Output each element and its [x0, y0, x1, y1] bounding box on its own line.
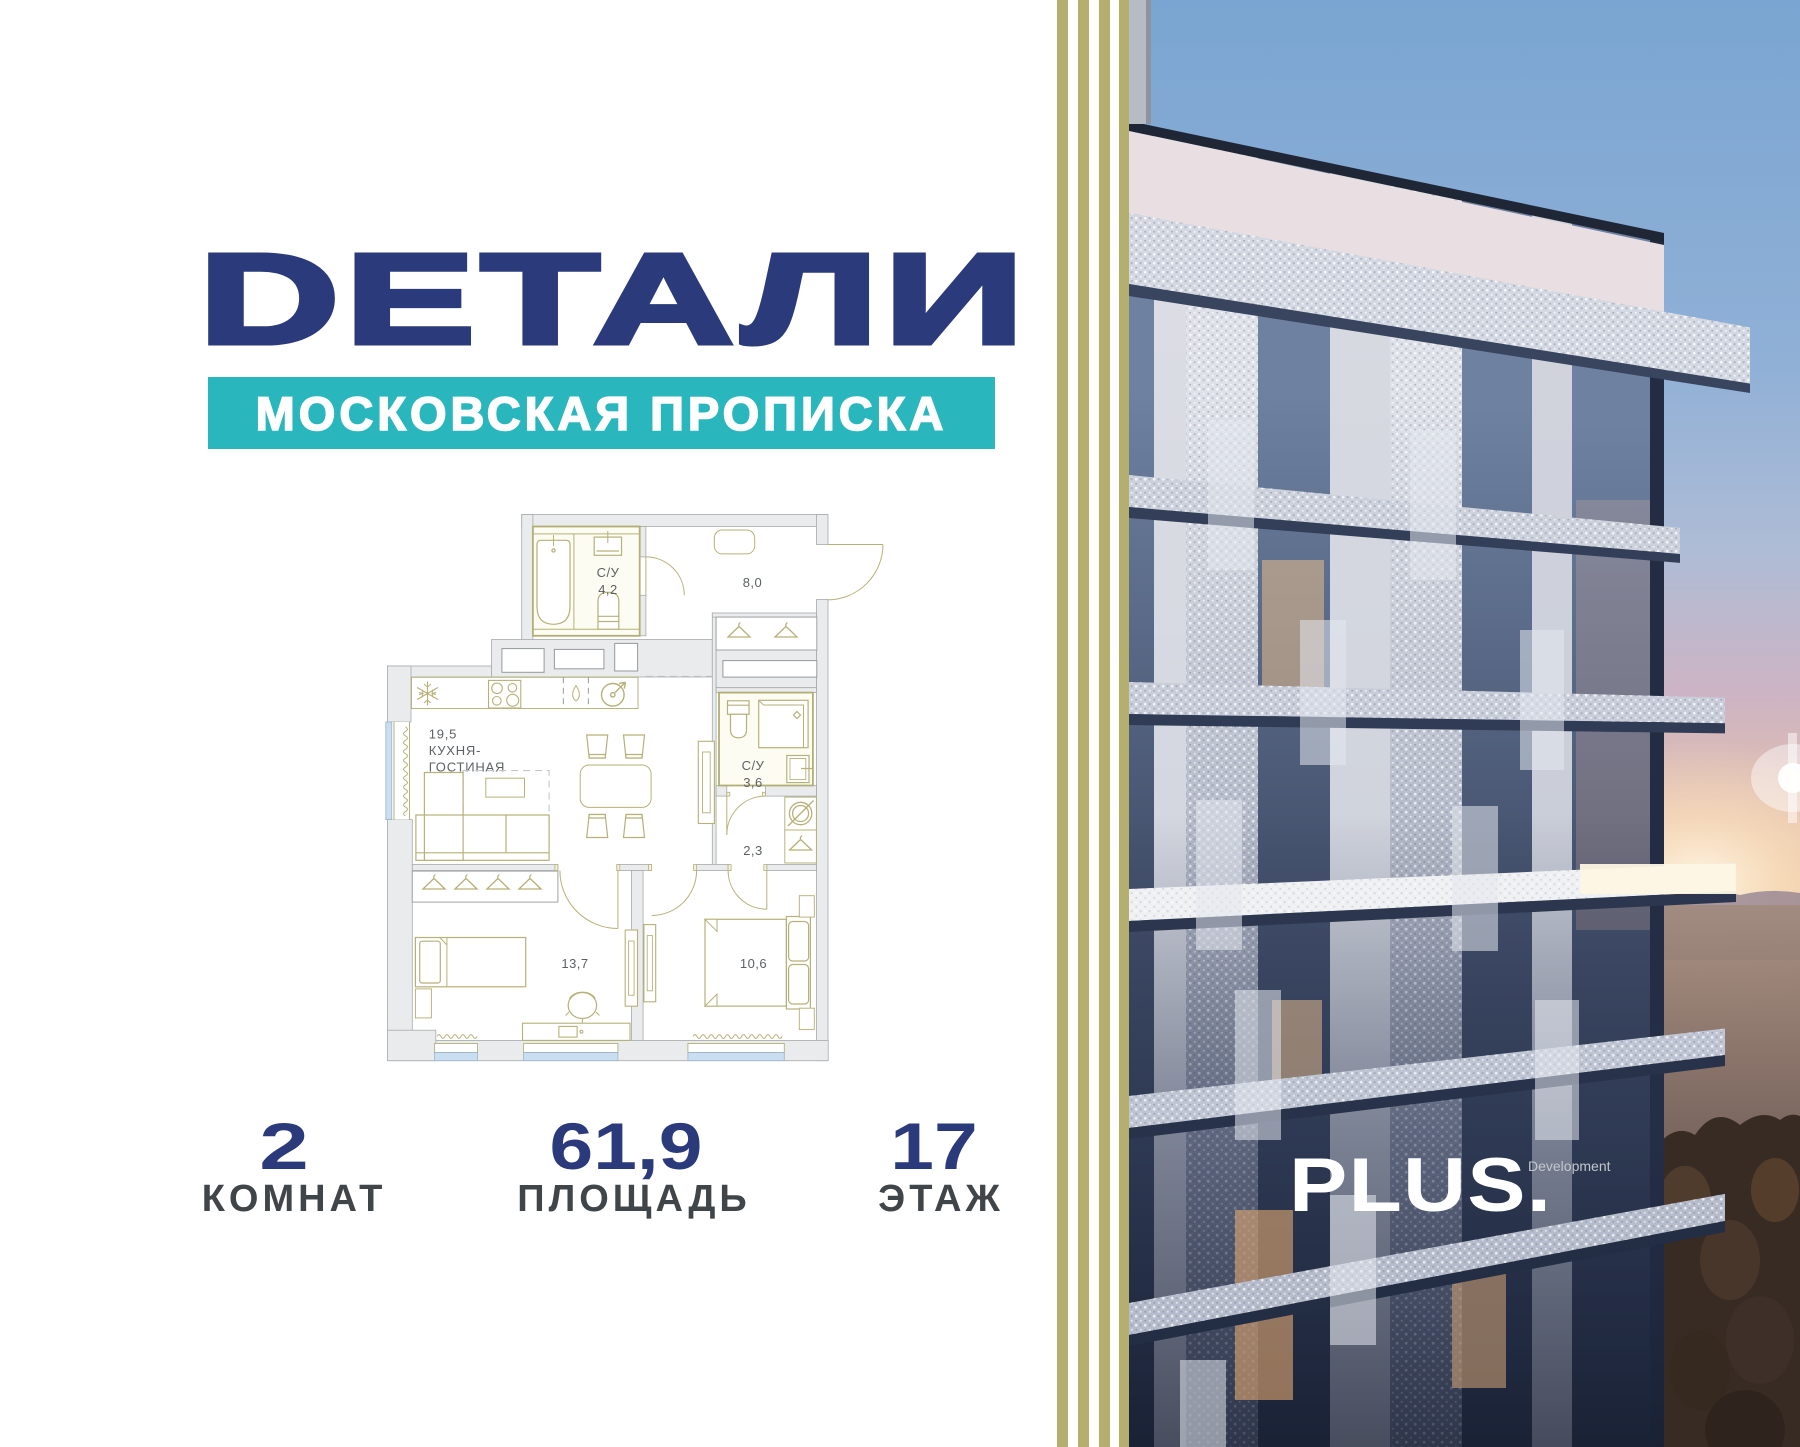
svg-text:КУХНЯ-: КУХНЯ- [429, 743, 482, 758]
svg-text:2,3: 2,3 [743, 843, 763, 858]
svg-text:13,7: 13,7 [561, 956, 588, 971]
svg-text:4,2: 4,2 [598, 582, 618, 597]
svg-text:С/У: С/У [742, 758, 765, 773]
svg-text:19,5: 19,5 [429, 727, 458, 742]
svg-text:3,6: 3,6 [743, 775, 763, 790]
svg-text:С/У: С/У [597, 565, 620, 580]
svg-text:8,0: 8,0 [743, 575, 763, 590]
svg-text:10,6: 10,6 [740, 956, 767, 971]
